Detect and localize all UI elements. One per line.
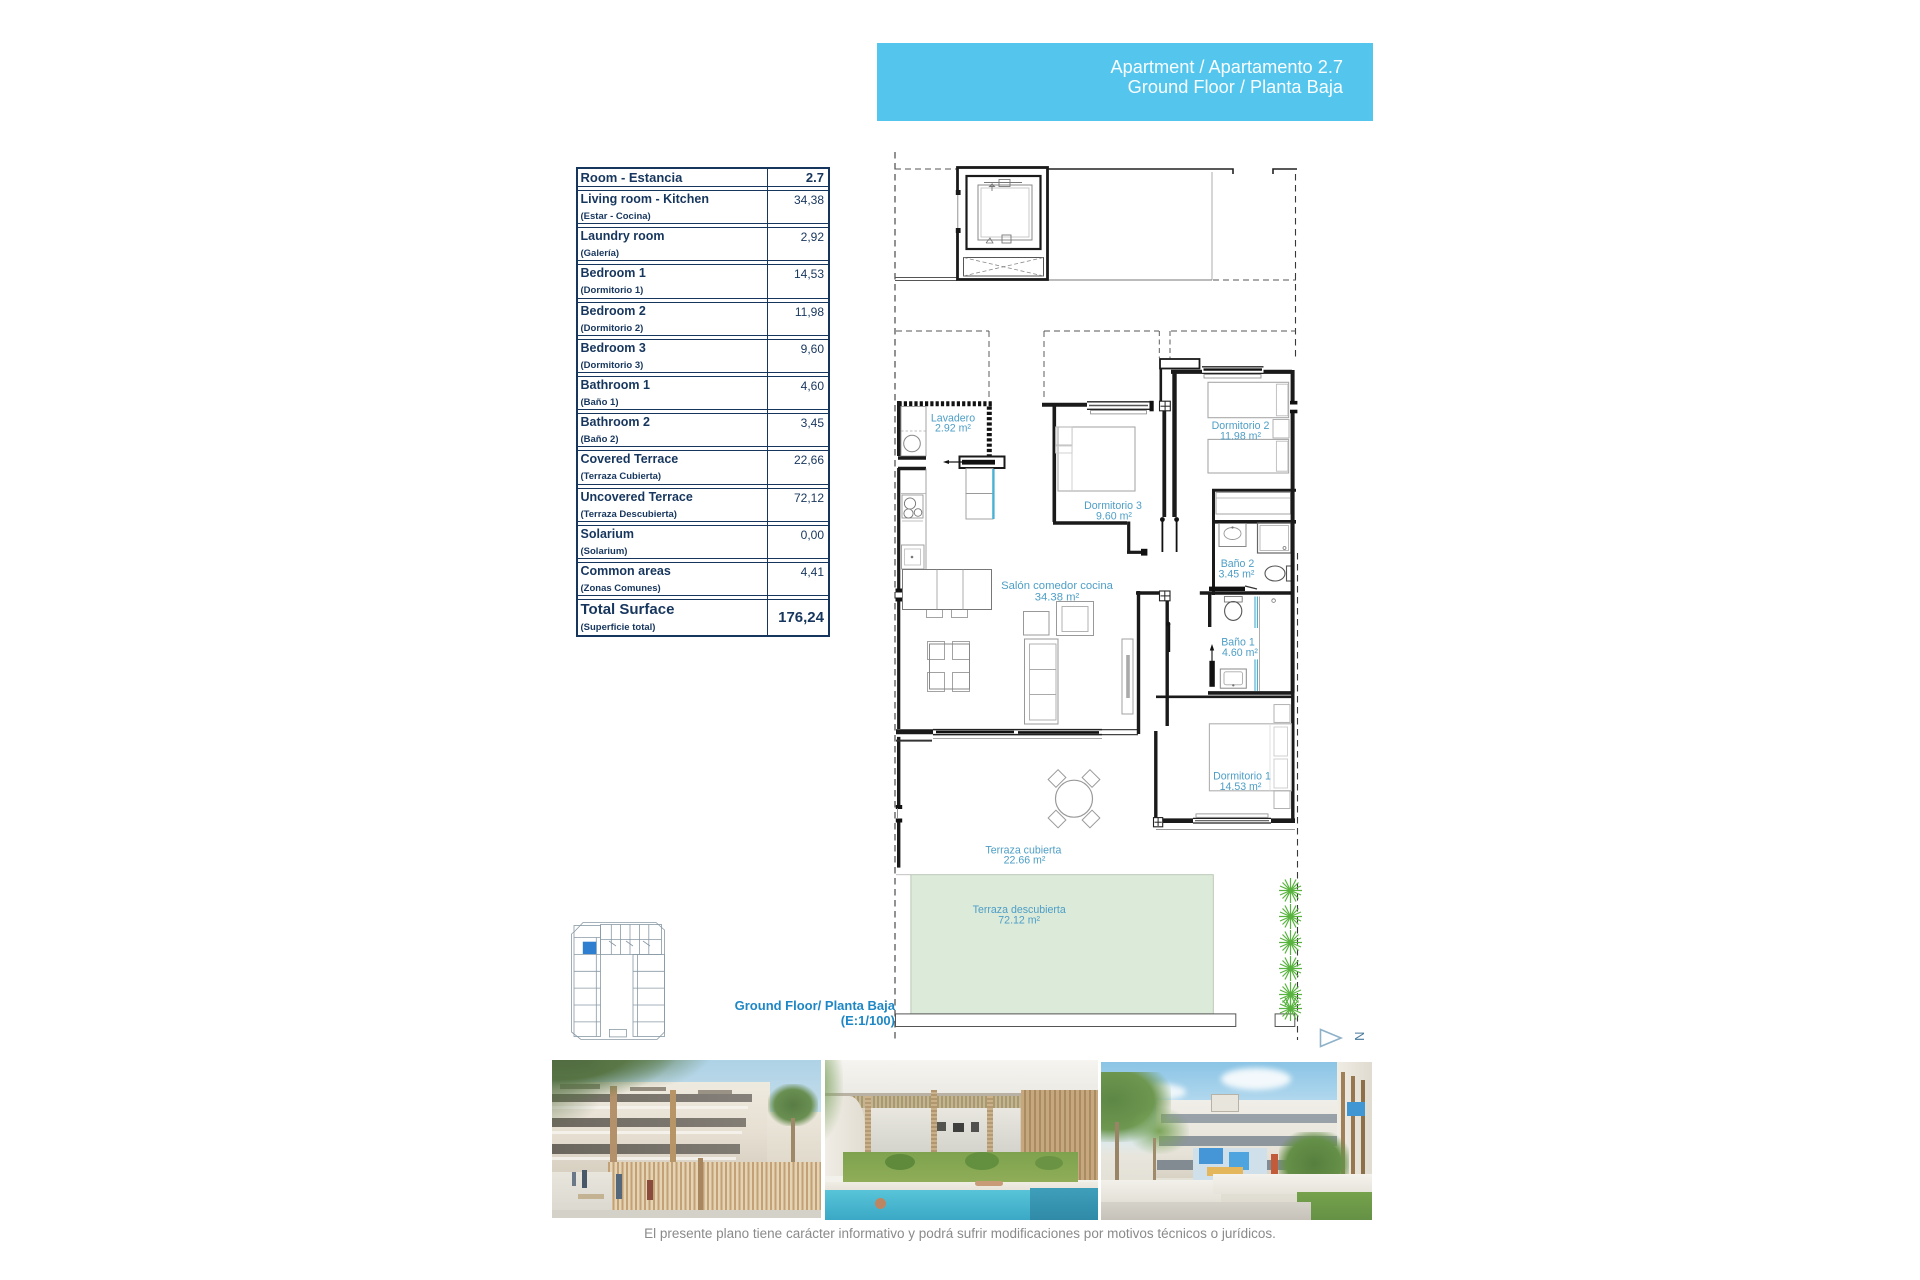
svg-text:N: N <box>1352 1032 1367 1041</box>
svg-text:4.60 m²: 4.60 m² <box>1222 647 1258 659</box>
svg-text:14.53 m²: 14.53 m² <box>1220 781 1262 793</box>
svg-text:Salón comedor cocina: Salón comedor cocina <box>1001 580 1113 592</box>
svg-text:72.12 m²: 72.12 m² <box>998 915 1040 927</box>
svg-text:22.66 m²: 22.66 m² <box>1004 855 1046 867</box>
svg-text:2.92 m²: 2.92 m² <box>935 423 971 435</box>
svg-text:9.60 m²: 9.60 m² <box>1096 511 1132 523</box>
svg-text:11.98 m²: 11.98 m² <box>1220 431 1261 443</box>
svg-text:3.45 m²: 3.45 m² <box>1219 569 1255 581</box>
